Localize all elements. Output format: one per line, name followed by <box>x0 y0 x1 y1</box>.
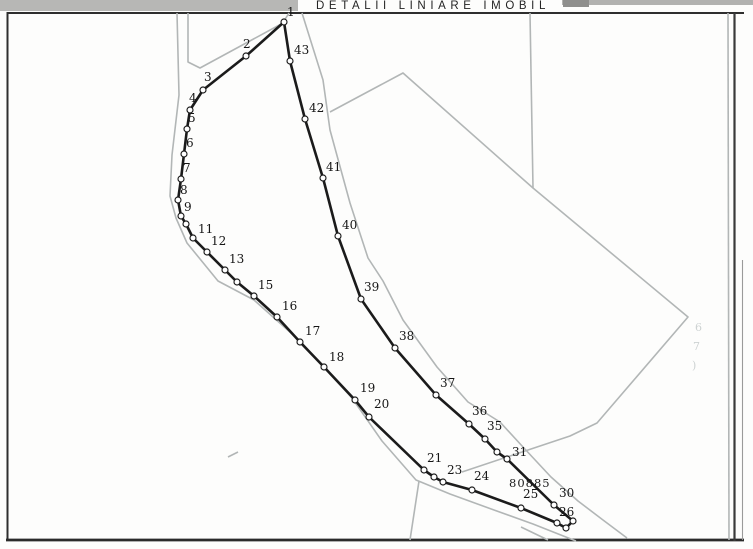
ghost-mark: ) <box>692 359 696 372</box>
vertex-label: 2 <box>243 37 251 51</box>
vertex-marker <box>234 279 240 285</box>
road-north-edge <box>188 13 283 68</box>
vertex-label: 37 <box>440 376 455 390</box>
vertex-label: 35 <box>487 419 502 433</box>
vertex-marker <box>281 19 287 25</box>
vertex-marker <box>392 345 398 351</box>
vertex-marker <box>466 421 472 427</box>
vertex-label: 30 <box>559 486 574 500</box>
vertex-marker <box>440 479 446 485</box>
vertex-label: 31 <box>512 445 527 459</box>
vertex-label: 9 <box>184 200 192 214</box>
vertex-label: 6 <box>186 136 194 150</box>
vertex-label: 39 <box>364 280 379 294</box>
vertex-marker <box>482 436 488 442</box>
vertex-marker <box>297 339 303 345</box>
vertex-marker <box>175 197 181 203</box>
vertex-label: 36 <box>472 404 487 418</box>
vertex-label: 43 <box>294 43 309 57</box>
vertex-marker <box>518 505 524 511</box>
map-frame <box>6 12 744 541</box>
inner-right-line <box>728 13 729 540</box>
vertex-marker <box>178 176 184 182</box>
vertex-marker <box>551 502 557 508</box>
vertex-label: 18 <box>329 350 344 364</box>
vertex-marker <box>183 221 189 227</box>
vertex-label: 21 <box>427 451 442 465</box>
vertex-marker <box>563 525 569 531</box>
vertex-label: 23 <box>447 463 462 477</box>
adjacent-parcel-boundary <box>330 73 688 472</box>
vertex-marker <box>366 414 372 420</box>
vertex-label: 26 <box>559 505 574 519</box>
vertex-marker <box>302 116 308 122</box>
parcel-number-label: 80885 <box>509 476 551 490</box>
vertex-marker <box>335 233 341 239</box>
vertex-marker <box>190 235 196 241</box>
labels-layer: 1234567891112131516171819202123242526303… <box>180 5 702 519</box>
vertex-label: 3 <box>204 70 212 84</box>
vertex-label: 20 <box>374 397 389 411</box>
vertex-marker <box>321 364 327 370</box>
vertex-label: 40 <box>342 218 357 232</box>
vertex-marker <box>504 456 510 462</box>
branch-line <box>410 481 419 540</box>
vertex-marker <box>200 87 206 93</box>
vertex-marker <box>184 126 190 132</box>
vertex-marker <box>433 392 439 398</box>
vertex-marker <box>352 397 358 403</box>
vertex-label: 5 <box>188 111 196 125</box>
vertex-label: 1 <box>287 5 295 19</box>
vertex-marker <box>421 467 427 473</box>
ghost-mark: 7 <box>693 340 700 353</box>
vertex-marker <box>469 487 475 493</box>
vertex-label: 41 <box>326 160 341 174</box>
vertex-marker <box>181 151 187 157</box>
vertex-label: 15 <box>258 278 273 292</box>
vertex-marker <box>358 296 364 302</box>
vertex-marker <box>431 474 437 480</box>
vertex-marker <box>554 520 560 526</box>
vertex-label: 4 <box>189 91 197 105</box>
vertex-label: 12 <box>211 234 226 248</box>
vertex-label: 19 <box>360 381 375 395</box>
vertex-marker <box>251 293 257 299</box>
vertex-marker <box>222 267 228 273</box>
vertex-marker <box>320 175 326 181</box>
vertex-marker <box>287 58 293 64</box>
vertex-label: 8 <box>180 183 188 197</box>
road-east-edge <box>302 13 627 538</box>
adjacent-parcels-layer <box>170 13 729 541</box>
vertex-label: 38 <box>399 329 414 343</box>
vertex-marker <box>494 449 500 455</box>
scratch-mark <box>228 452 238 457</box>
vertex-label: 7 <box>183 161 191 175</box>
cadastral-plan-page: DETALII LINIARE IMOBIL 12345678911121315… <box>0 0 753 549</box>
ghost-mark: 6 <box>695 321 702 334</box>
plan-map: 1234567891112131516171819202123242526303… <box>0 0 753 549</box>
vertex-marker <box>274 314 280 320</box>
vertex-label: 16 <box>282 299 297 313</box>
vertex-label: 17 <box>305 324 320 338</box>
vertex-label: 42 <box>309 101 324 115</box>
vertex-marker <box>204 249 210 255</box>
vertical-parcel-line <box>530 13 533 188</box>
vertex-marker <box>243 53 249 59</box>
vertex-label: 13 <box>229 252 244 266</box>
vertex-label: 24 <box>474 469 490 483</box>
